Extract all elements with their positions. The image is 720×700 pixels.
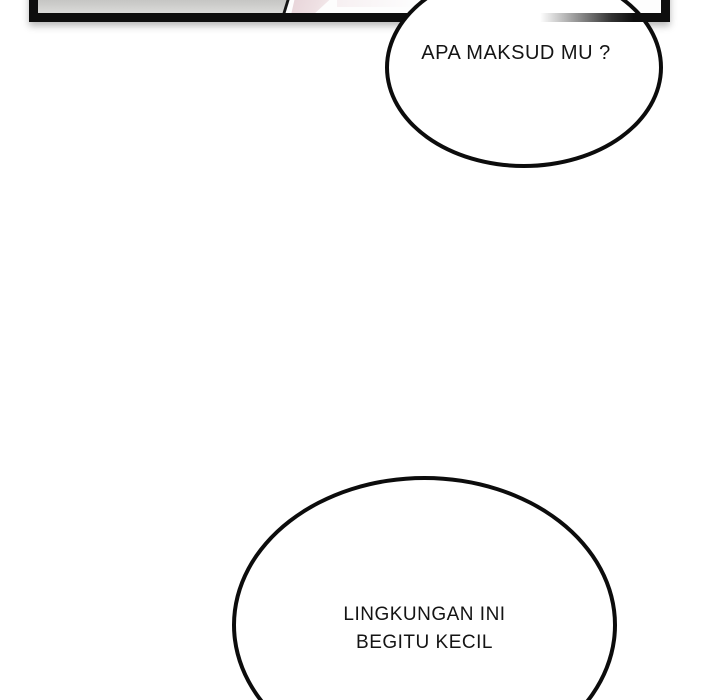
speech-text-line-1: LINGKUNGAN INI <box>236 601 613 629</box>
panel-art-gray-wall <box>38 0 291 15</box>
speech-bubble-top: APA MAKSUD MU ? <box>385 0 663 168</box>
panel-art-pink-wedge <box>291 0 337 15</box>
speech-bubble-bottom: LINGKUNGAN INI BEGITU KECIL <box>232 476 617 700</box>
comic-page: APA MAKSUD MU ? LINGKUNGAN INI BEGITU KE… <box>0 0 720 700</box>
speech-text-top: APA MAKSUD MU ? <box>389 41 643 65</box>
speech-text-bottom: LINGKUNGAN INI BEGITU KECIL <box>236 601 613 657</box>
speech-text-line-2: BEGITU KECIL <box>236 629 613 657</box>
panel-border-fade <box>540 13 670 22</box>
